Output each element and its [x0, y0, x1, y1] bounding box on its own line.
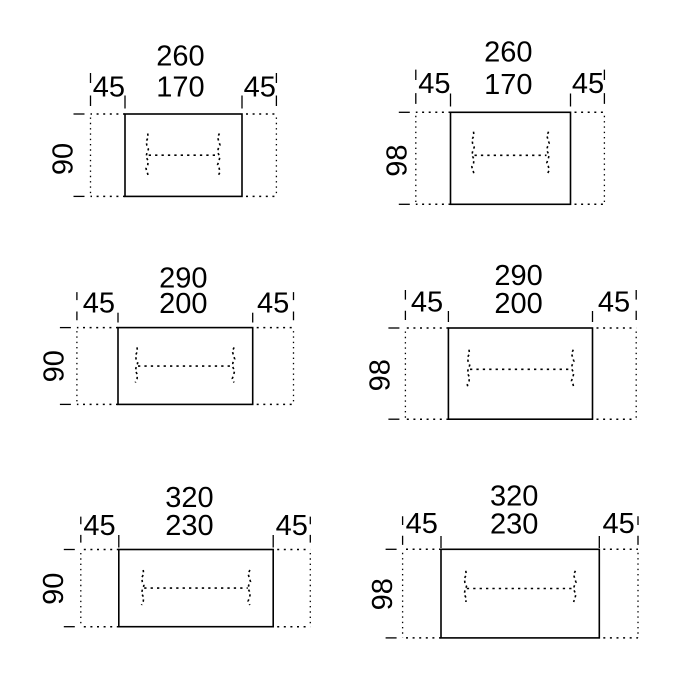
svg-text:170: 170	[484, 69, 532, 101]
svg-text:200: 200	[494, 288, 542, 320]
svg-text:45: 45	[418, 68, 450, 100]
svg-text:45: 45	[83, 287, 115, 319]
svg-text:260: 260	[484, 37, 532, 69]
svg-text:45: 45	[244, 71, 276, 103]
svg-text:90: 90	[38, 573, 70, 605]
svg-text:170: 170	[156, 71, 204, 103]
svg-text:45: 45	[83, 510, 115, 542]
svg-text:260: 260	[156, 41, 204, 73]
svg-text:45: 45	[257, 287, 289, 319]
svg-text:45: 45	[93, 71, 125, 103]
svg-text:45: 45	[406, 508, 438, 540]
svg-text:230: 230	[490, 508, 538, 540]
svg-text:98: 98	[382, 144, 414, 176]
svg-text:45: 45	[411, 287, 443, 319]
svg-text:200: 200	[159, 288, 207, 320]
svg-text:45: 45	[572, 68, 604, 100]
svg-text:45: 45	[602, 508, 634, 540]
svg-text:98: 98	[367, 578, 399, 610]
svg-text:90: 90	[47, 143, 79, 175]
svg-text:45: 45	[276, 510, 308, 542]
svg-text:98: 98	[365, 359, 397, 391]
svg-text:90: 90	[39, 350, 71, 382]
svg-text:230: 230	[165, 510, 213, 542]
svg-text:45: 45	[598, 287, 630, 319]
